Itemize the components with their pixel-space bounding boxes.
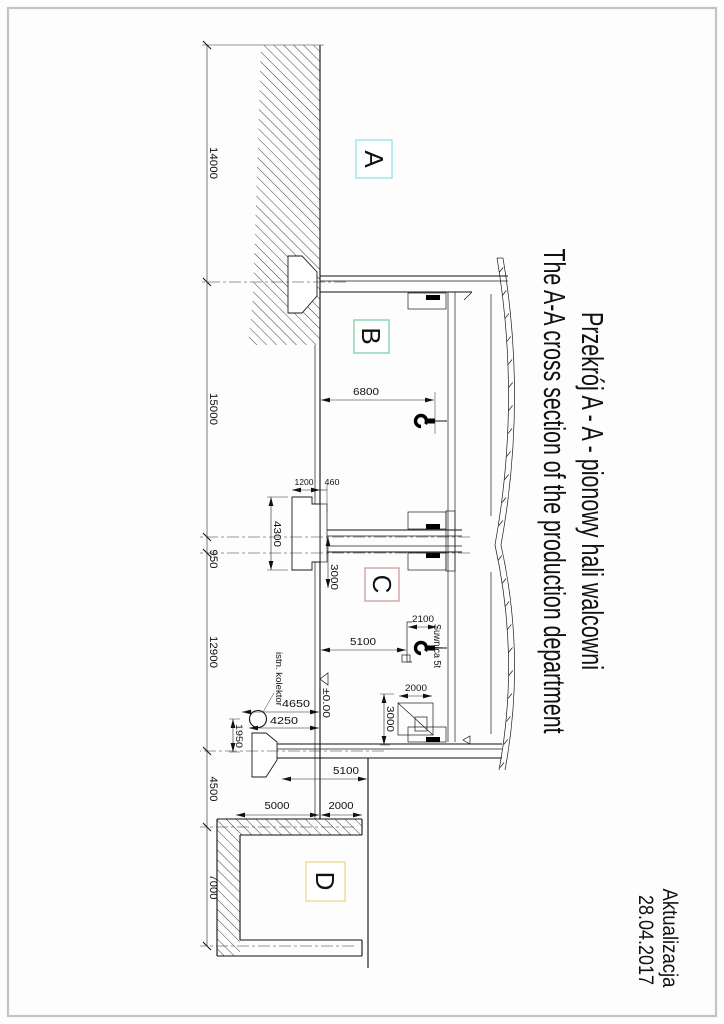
crane-rail-right: [426, 737, 440, 742]
crane-hook-c-icon: [416, 643, 427, 654]
crane-rail-left: [426, 295, 440, 300]
dim-7000: 7000: [207, 875, 219, 900]
dim-460: 460: [325, 478, 341, 487]
dim-5100-foundation: 5100: [333, 766, 360, 777]
dim-1950: 1950: [234, 724, 244, 748]
dim-level-zero: ±0.00: [320, 688, 331, 719]
revision-label: Aktualizacja: [658, 889, 681, 988]
dim-2000-pit: 2000: [329, 801, 354, 812]
crane-rail-mid-west: [426, 524, 440, 529]
zone-letter-d: D: [310, 872, 340, 891]
revision-date: 28.04.2017: [634, 895, 657, 985]
dim-4250: 4250: [270, 716, 299, 727]
dim-5000-pit: 5000: [265, 801, 290, 812]
dim-14000: 14000: [207, 147, 219, 179]
dim-950: 950: [207, 550, 219, 569]
level-mark-icon: [320, 673, 328, 685]
zone-letter-c: C: [367, 575, 397, 594]
collector-label: istn. kolektor: [274, 652, 284, 706]
zone-letter-a: A: [359, 150, 389, 168]
dim-1200: 1200: [295, 478, 315, 487]
crane-rail-mid-east: [426, 553, 440, 558]
dim-4300: 4300: [271, 521, 282, 548]
middle-footing: [292, 497, 320, 570]
left-wall: [200, 256, 508, 313]
dim-5100-hook: 5100: [350, 637, 377, 648]
dim-12900: 12900: [207, 636, 219, 668]
cross-section-drawing: Przekrój A - A - pionowy hali walcowni T…: [0, 0, 724, 1024]
collector-pipe-icon: [250, 711, 267, 728]
title-english: The A-A cross section of the production …: [537, 249, 572, 734]
scanned-drawing-sheet: Przekrój A - A - pionowy hali walcowni T…: [0, 0, 724, 1024]
dim-4500: 4500: [207, 777, 219, 802]
dim-2000-wall: 2000: [405, 683, 427, 693]
crane-label: Suwnica 5t: [431, 624, 442, 668]
revision-block: Aktualizacja 28.04.2017: [634, 889, 681, 988]
dim-6800: 6800: [353, 387, 380, 398]
title-block: Przekrój A - A - pionowy hali walcowni T…: [537, 249, 610, 734]
dim-15000: 15000: [207, 393, 219, 425]
rotated-drawing-stage: Przekrój A - A - pionowy hali walcowni T…: [0, 0, 724, 1024]
title-polish: Przekrój A - A - pionowy hali walcowni: [575, 312, 610, 670]
dim-3000-wall: 3000: [384, 706, 395, 733]
roof-arc-inner: [495, 258, 509, 770]
middle-columns: [200, 497, 470, 571]
right-wall-footing: [252, 733, 277, 777]
wall-level-flag: [463, 736, 470, 744]
dim-3000-column: 3000: [328, 564, 339, 591]
dim-2100: 2100: [412, 614, 434, 624]
zone-letter-b: B: [356, 327, 386, 344]
dim-4650: 4650: [282, 699, 311, 710]
roof-structure: [448, 258, 515, 770]
crane-hook-b-icon: [416, 416, 427, 427]
crane-hooks: Suwnica 5t: [402, 416, 447, 669]
